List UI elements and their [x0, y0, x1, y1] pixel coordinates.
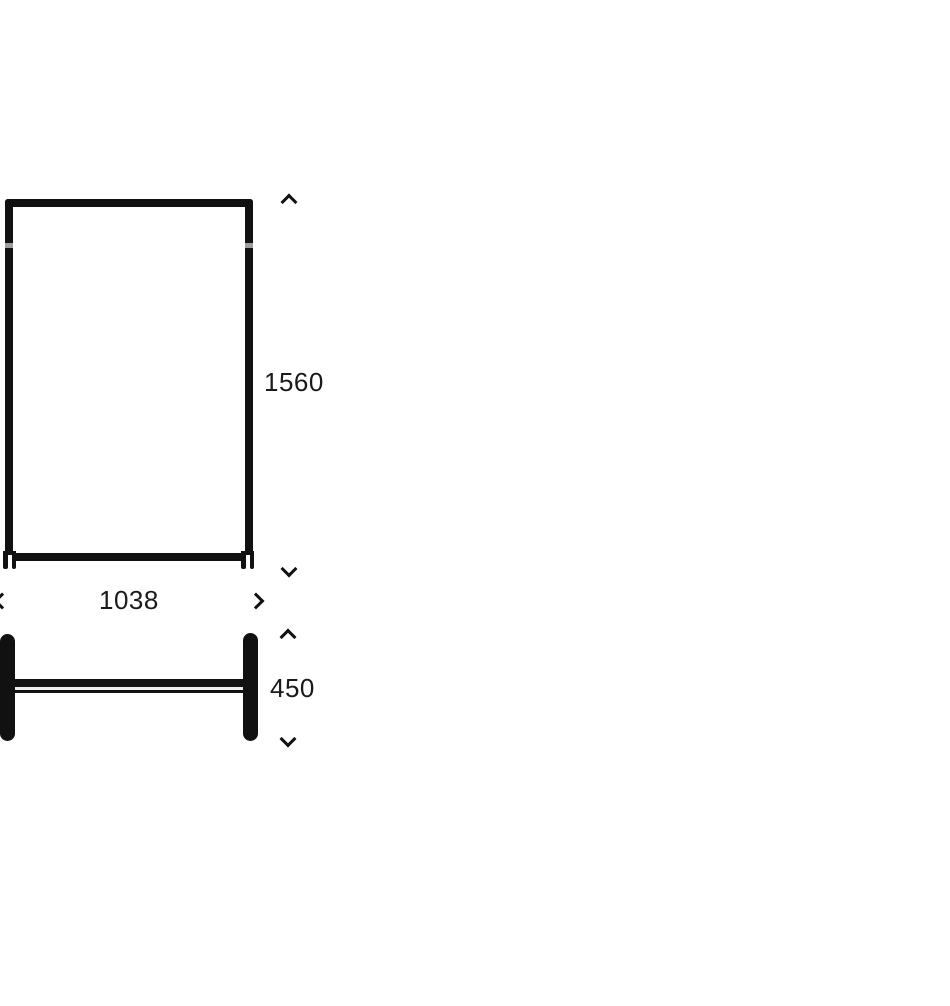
dim-depth-label: 450: [270, 675, 315, 701]
base-crossbar: [5, 679, 254, 693]
frame-bottom-rail: [14, 553, 246, 561]
foot-prong: [241, 551, 246, 569]
frame-joint-right: [245, 243, 253, 248]
base-side-left: [0, 634, 15, 741]
foot-prong: [250, 551, 255, 569]
foot-right: [241, 551, 254, 569]
foot-prong: [3, 551, 8, 569]
frame-joint-left: [5, 243, 13, 248]
dim-height-arrow-down-icon: [281, 561, 298, 578]
dim-height-label: 1560: [264, 369, 324, 395]
crossbar-highlight: [11, 687, 248, 690]
base-side-right: [243, 633, 258, 741]
dim-width-arrow-right-icon: [248, 593, 265, 610]
dim-depth-arrow-down-icon: [280, 731, 297, 748]
dim-width-label: 1038: [99, 587, 159, 613]
foot-left: [3, 551, 16, 569]
front-view-frame: [5, 199, 253, 555]
dim-width-arrow-left-icon: [0, 593, 10, 610]
dim-height-arrow-up-icon: [281, 194, 298, 211]
dim-depth-arrow-up-icon: [280, 629, 297, 646]
foot-prong: [12, 551, 17, 569]
technical-drawing-canvas: 1560 1038 450: [0, 0, 950, 1006]
